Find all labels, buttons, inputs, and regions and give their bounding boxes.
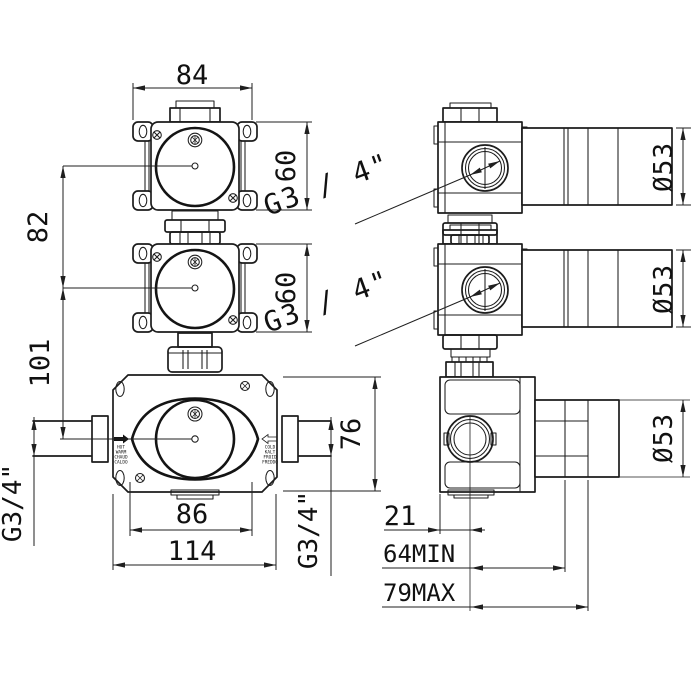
dim-label-21: 21 <box>384 501 417 532</box>
thread-label-front-left: G3/4" <box>0 464 28 542</box>
front-valve-connector-lower <box>168 333 222 372</box>
drawing-canvas: HOT WARM CHAUD CALDO COLD KALT FROID FRE… <box>0 0 700 700</box>
dia-label-top: Ø53 <box>649 142 679 192</box>
side-valve-connector-lower <box>443 335 497 377</box>
dim-label-76: 76 <box>336 418 367 451</box>
hot-label-it: CALDO <box>114 460 128 466</box>
dim-label-64min: 64MIN <box>383 540 455 568</box>
dia-label-middle: Ø53 <box>649 264 679 314</box>
front-view-top-valve <box>133 101 257 210</box>
front-view-mixer-body <box>33 375 331 499</box>
side-view-middle-valve <box>434 225 672 335</box>
cold-label-it: FREDDO <box>262 460 278 466</box>
side-view-top-valve <box>434 103 672 213</box>
dim-label-82: 82 <box>23 211 54 244</box>
dim-label-114: 114 <box>168 536 217 567</box>
dim-label-84: 84 <box>176 60 209 91</box>
dia-label-bottom: Ø53 <box>649 413 679 463</box>
technical-drawing: HOT WARM CHAUD CALDO COLD KALT FROID FRE… <box>0 0 700 700</box>
dim-label-101: 101 <box>25 339 56 388</box>
dim-label-86: 86 <box>176 499 209 530</box>
thread-label-front-right: G3/4" <box>294 491 324 569</box>
front-valve-connector-upper <box>165 211 225 244</box>
dim-label-79max: 79MAX <box>383 579 456 607</box>
